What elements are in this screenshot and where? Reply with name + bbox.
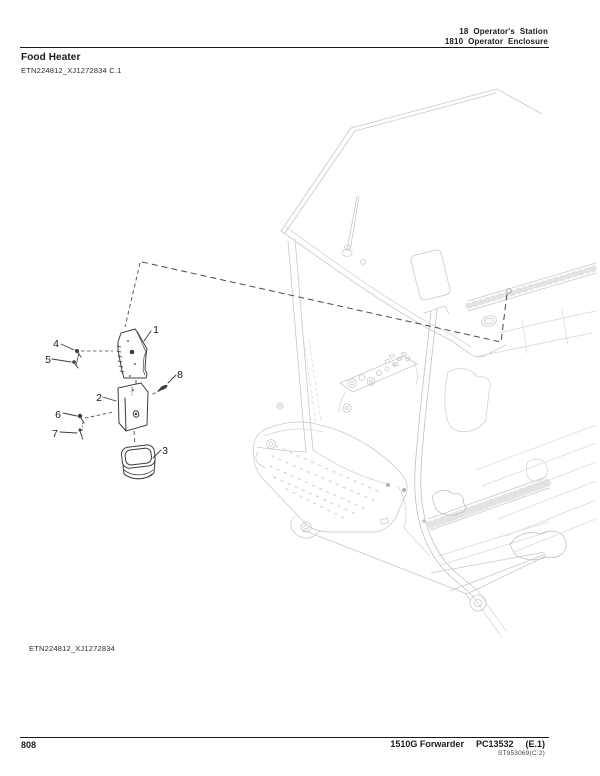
part-2-heater-body — [118, 383, 148, 431]
exploded-view-diagram: 1 2 3 4 5 6 7 8 — [0, 0, 600, 776]
footer-publication: PC13532 — [476, 739, 514, 749]
figure-ref-bottom: ETN224812_XJ1272834 — [29, 644, 115, 653]
footer-publication-line: 1510G Forwarder PC13532 (E.1) — [390, 739, 545, 749]
callout-8: 8 — [177, 369, 183, 381]
callout-5: 5 — [45, 354, 51, 366]
part-3-heater-cover — [121, 444, 156, 479]
footer-model: 1510G Forwarder — [390, 739, 464, 749]
callout-1: 1 — [153, 324, 159, 336]
footer-rule — [20, 737, 549, 738]
callout-7: 7 — [52, 428, 58, 440]
footer-doc-code: ST953069(C.2) — [498, 750, 545, 757]
part-1-bracket — [117, 329, 147, 378]
manual-page: 18 Operator's Station 1810 Operator Encl… — [0, 0, 600, 776]
callout-6: 6 — [55, 409, 61, 421]
footer-edition: (E.1) — [525, 739, 545, 749]
callout-leader-lines — [52, 331, 176, 458]
callout-4: 4 — [53, 338, 59, 350]
callout-numbers: 1 2 3 4 5 6 7 8 — [45, 324, 183, 457]
callout-2: 2 — [96, 392, 102, 404]
cab-wireframe — [253, 89, 596, 636]
callout-3: 3 — [162, 445, 168, 457]
page-number: 808 — [21, 740, 36, 750]
